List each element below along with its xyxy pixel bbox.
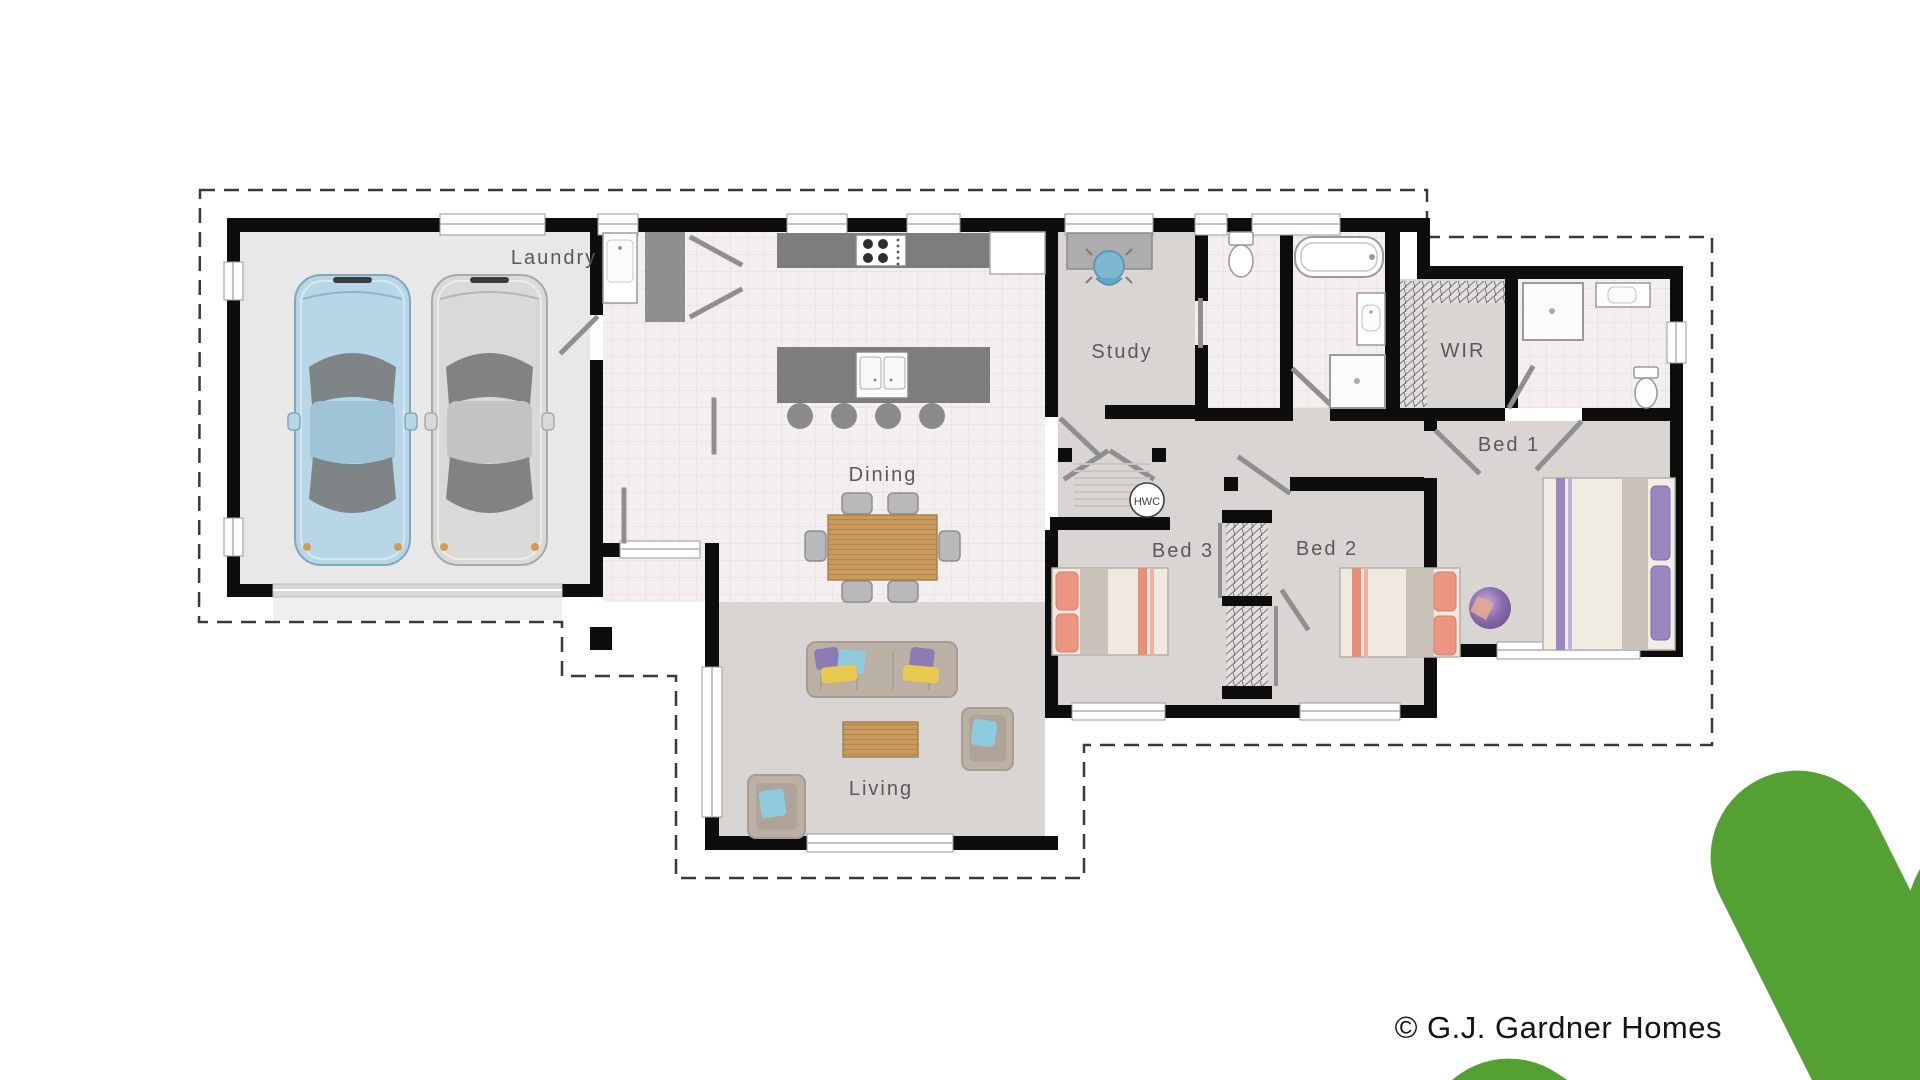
hwc-label: HWC — [1134, 496, 1160, 508]
copyright-text: © G.J. Gardner Homes — [1395, 1010, 1722, 1045]
room-label-study: Study — [1091, 341, 1152, 363]
bath-shower-icon — [1330, 355, 1385, 408]
armchair-right — [962, 708, 1013, 770]
coffee-table — [843, 722, 918, 757]
wc-toilet-icon — [1229, 232, 1253, 277]
ensuite-toilet-icon — [1634, 367, 1658, 408]
dining-table — [828, 515, 937, 580]
bed-3 — [1052, 568, 1168, 655]
sofa — [807, 642, 957, 697]
bed-2 — [1340, 568, 1460, 657]
kitchen-bench — [777, 232, 1045, 274]
bath-tub-icon — [1295, 237, 1383, 277]
porch-post — [590, 627, 612, 650]
ensuite-vanity-icon — [1596, 283, 1650, 307]
pantry — [645, 232, 685, 322]
room-label-bed2: Bed 2 — [1296, 538, 1358, 560]
fridge — [990, 232, 1045, 274]
bed-1 — [1543, 478, 1675, 650]
room-label-laundry: Laundry — [511, 247, 597, 269]
room-label-wir: WIR — [1441, 340, 1486, 362]
room-label-dining: Dining — [849, 464, 918, 486]
cooktop-icon — [856, 235, 906, 266]
floor-plan-page: HWC — [0, 0, 1920, 1080]
sink-icon — [856, 352, 908, 398]
ensuite-shower-icon — [1523, 283, 1583, 340]
floor-plan: HWC — [0, 0, 1920, 1080]
room-label-living: Living — [849, 778, 913, 800]
car-silver — [425, 275, 554, 565]
driveway-apron — [273, 597, 562, 620]
bath-vanity-icon — [1357, 293, 1385, 345]
car-blue — [288, 275, 417, 565]
armchair-left — [748, 775, 805, 838]
room-label-bed1: Bed 1 — [1478, 434, 1540, 456]
laundry-tub — [603, 233, 637, 303]
wc-sliding-door — [1198, 298, 1203, 348]
room-label-bed3: Bed 3 — [1152, 540, 1214, 562]
